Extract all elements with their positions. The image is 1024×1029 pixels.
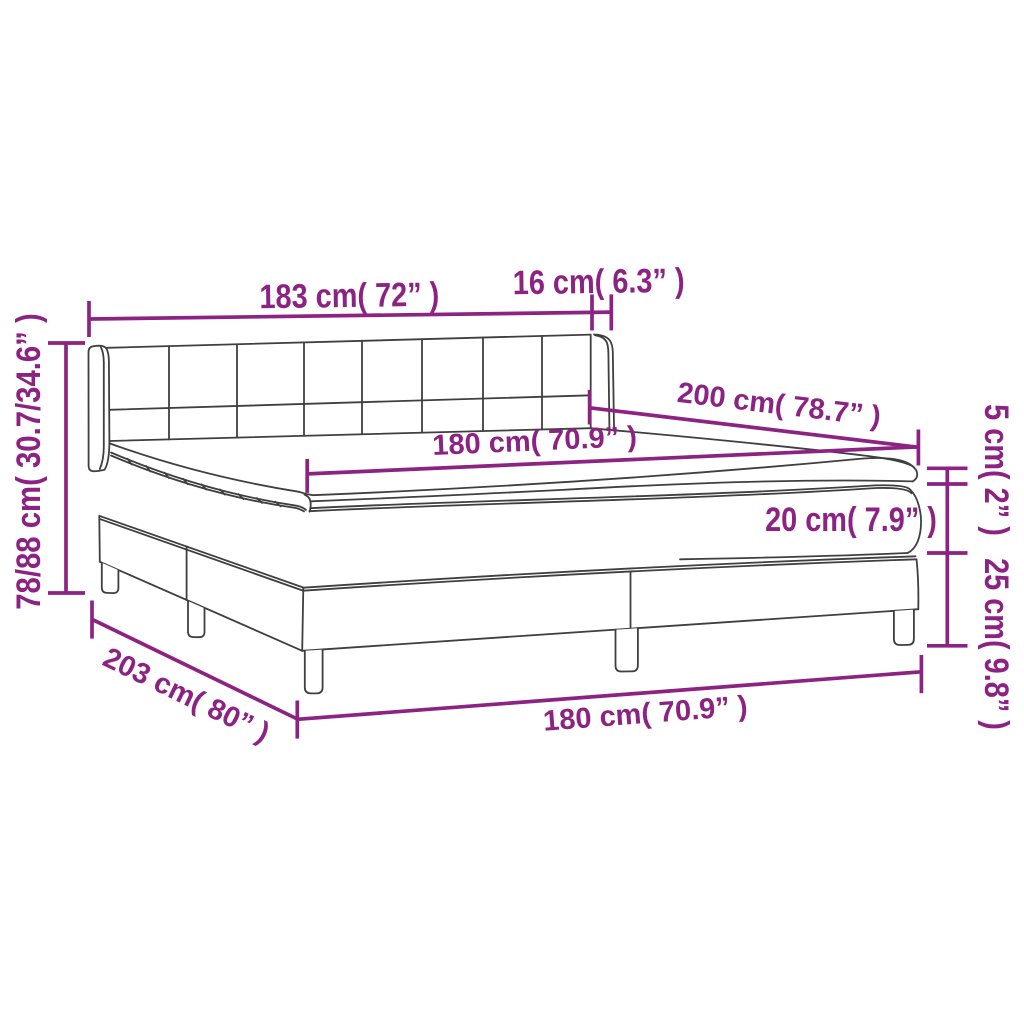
svg-text:5 cm( 2” ): 5 cm( 2” ) — [977, 404, 1016, 536]
svg-text:20 cm( 7.9” ): 20 cm( 7.9” ) — [765, 500, 937, 539]
svg-text:16 cm( 6.3” ): 16 cm( 6.3” ) — [512, 261, 684, 302]
svg-text:78/88 cm( 30.7/34.6” ): 78/88 cm( 30.7/34.6” ) — [9, 313, 48, 609]
svg-text:183 cm( 72” ): 183 cm( 72” ) — [259, 274, 439, 315]
svg-text:25 cm( 9.8” ): 25 cm( 9.8” ) — [977, 558, 1016, 730]
